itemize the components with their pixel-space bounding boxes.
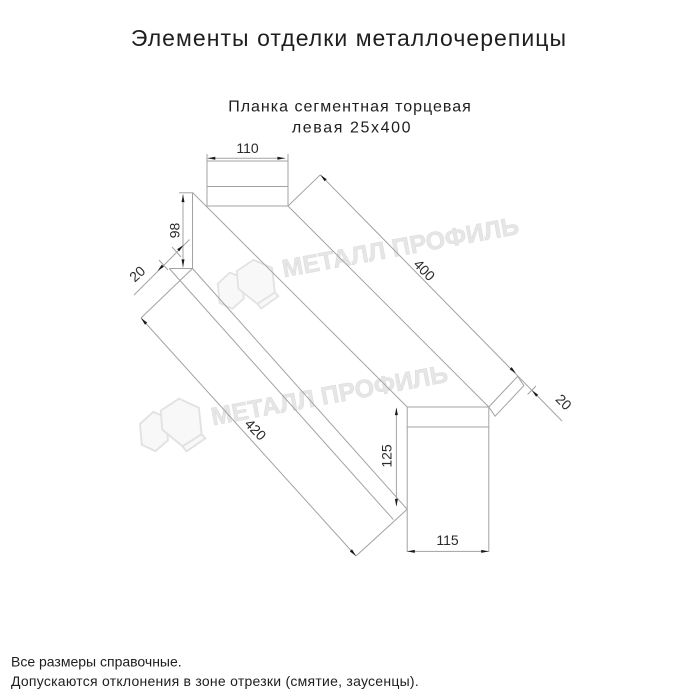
svg-text:110: 110: [236, 140, 259, 156]
svg-text:Все размеры справочные.: Все размеры справочные.: [11, 653, 182, 669]
svg-text:115: 115: [436, 532, 459, 548]
svg-text:20: 20: [553, 391, 575, 413]
svg-text:98: 98: [167, 223, 183, 239]
svg-text:Допускаются отклонения в зоне: Допускаются отклонения в зоне отрезки (с…: [11, 673, 419, 689]
svg-text:МЕТАЛЛ ПРОФИЛЬ: МЕТАЛЛ ПРОФИЛЬ: [209, 360, 450, 431]
svg-text:400: 400: [411, 256, 439, 284]
svg-text:125: 125: [379, 444, 395, 468]
svg-text:МЕТАЛЛ ПРОФИЛЬ: МЕТАЛЛ ПРОФИЛЬ: [280, 212, 521, 283]
svg-text:левая 25х400: левая 25х400: [292, 120, 412, 137]
svg-text:Планка сегментная торцевая: Планка сегментная торцевая: [228, 98, 472, 115]
svg-text:20: 20: [126, 262, 148, 284]
svg-text:Элементы отделки металлочерепи: Элементы отделки металлочерепицы: [131, 25, 567, 51]
